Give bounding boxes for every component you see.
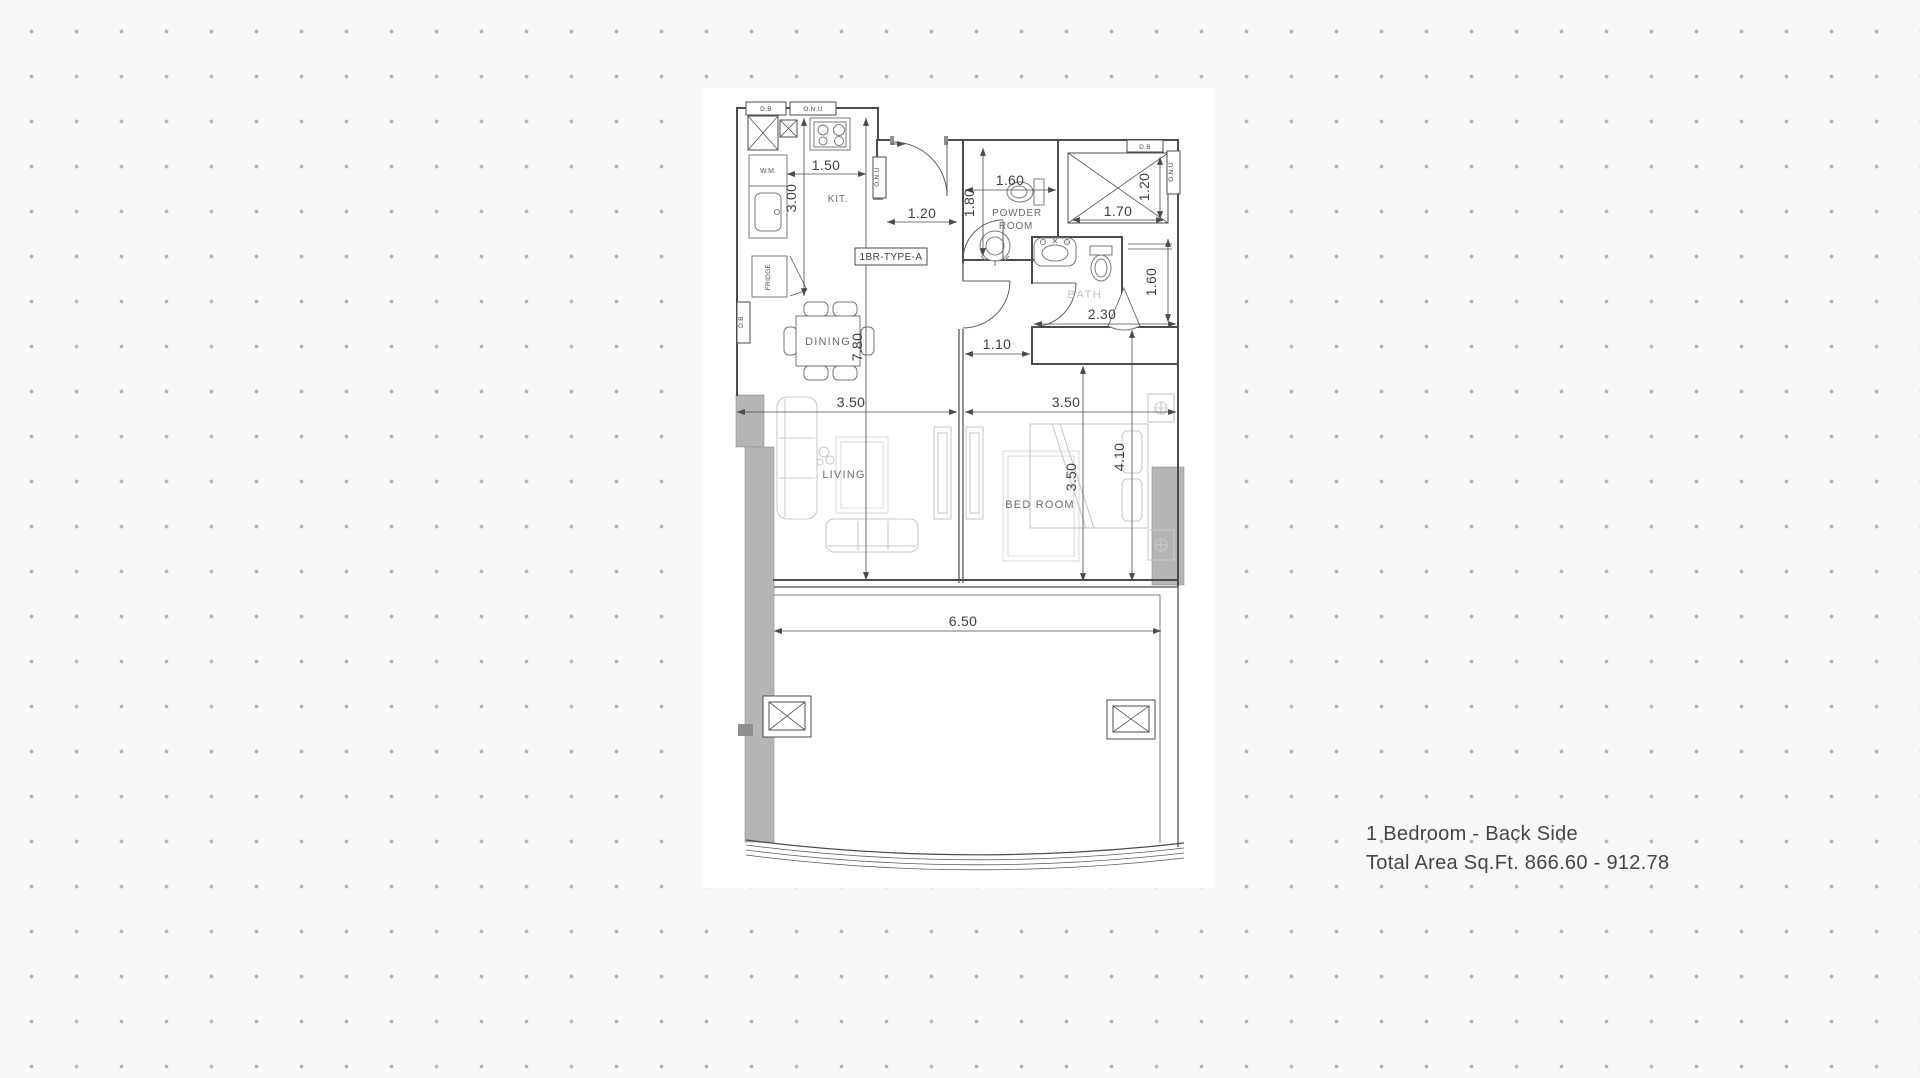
caption-title: 1 Bedroom - Back Side: [1366, 820, 1669, 849]
onu-right-label: O.N.U: [1168, 162, 1175, 182]
entry-door: [893, 142, 947, 196]
dim-kitchen-width: 1.50: [812, 157, 840, 173]
dim-overall-depth: 7.80: [849, 333, 865, 361]
onu-top-label: O.N.U: [803, 106, 823, 113]
balcony-columns: [763, 696, 1155, 739]
sofa: [777, 397, 817, 519]
tv-unit-living: [934, 427, 951, 519]
dim-living-width: 3.50: [837, 394, 865, 410]
dim-bath-width: 2.30: [1088, 306, 1116, 322]
dim-shaft-depth: 1.20: [1136, 173, 1152, 201]
dim-bedroom-depth: 4.10: [1111, 443, 1127, 471]
sofa-2: [826, 519, 918, 552]
unit-type-label: 1BR-TYPE-A: [860, 252, 923, 263]
onu-entry-label: O.N.U: [874, 167, 881, 187]
unit-type-tag: 1BR-TYPE-A: [855, 248, 927, 265]
dim-kitchen-depth: 3.00: [783, 184, 799, 212]
db-top-label: D.B: [760, 106, 772, 113]
room-label-bedroom: BED ROOM: [1005, 499, 1075, 511]
plan-caption: 1 Bedroom - Back Side Total Area Sq.Ft. …: [1366, 820, 1669, 878]
room-label-living: LIVING: [822, 469, 865, 481]
dresser-bedroom: [966, 427, 983, 519]
dim-bath-depth: 1.60: [1143, 268, 1159, 296]
bath-toilet-tank: [1090, 246, 1112, 255]
room-label-kitchen: KIT.: [828, 194, 848, 205]
db-right-label: D.B: [1139, 144, 1151, 151]
dim-corridor-width: 1.10: [983, 336, 1011, 352]
fridge-label: FRIDGE: [765, 263, 772, 290]
dim-powder-depth: 1.80: [961, 189, 977, 217]
dimension-labels: 1.50 3.00 7.80 1.20 1.80 1.60 1.70 1.20 …: [783, 157, 1159, 629]
caption-area: Total Area Sq.Ft. 866.60 - 912.78: [1366, 849, 1669, 878]
floor-plan: D.B O.N.U O.N.U D.B D.B O.N.U W.M.: [702, 88, 1214, 888]
dim-balcony-width: 6.50: [949, 613, 977, 629]
screenshot-canvas: D.B O.N.U O.N.U D.B D.B O.N.U W.M.: [0, 0, 1920, 1078]
db-left-label: D.B: [738, 316, 745, 328]
room-label-powder-1: POWDER: [992, 208, 1042, 219]
wm-label: W.M.: [760, 168, 776, 175]
dim-bedroom-length: 3.50: [1063, 463, 1079, 491]
powder-toilet-tank: [1034, 179, 1044, 205]
room-label-powder-2: ROOM: [999, 221, 1033, 232]
dim-powder-width: 1.60: [996, 172, 1024, 188]
dim-entry-width: 1.20: [908, 205, 936, 221]
room-label-dining: DINING: [805, 336, 851, 348]
dim-bedroom-width: 3.50: [1052, 394, 1080, 410]
room-label-bath: BATH: [1068, 289, 1103, 301]
dim-shaft-width: 1.70: [1104, 203, 1132, 219]
bedroom-door: [963, 281, 1010, 328]
